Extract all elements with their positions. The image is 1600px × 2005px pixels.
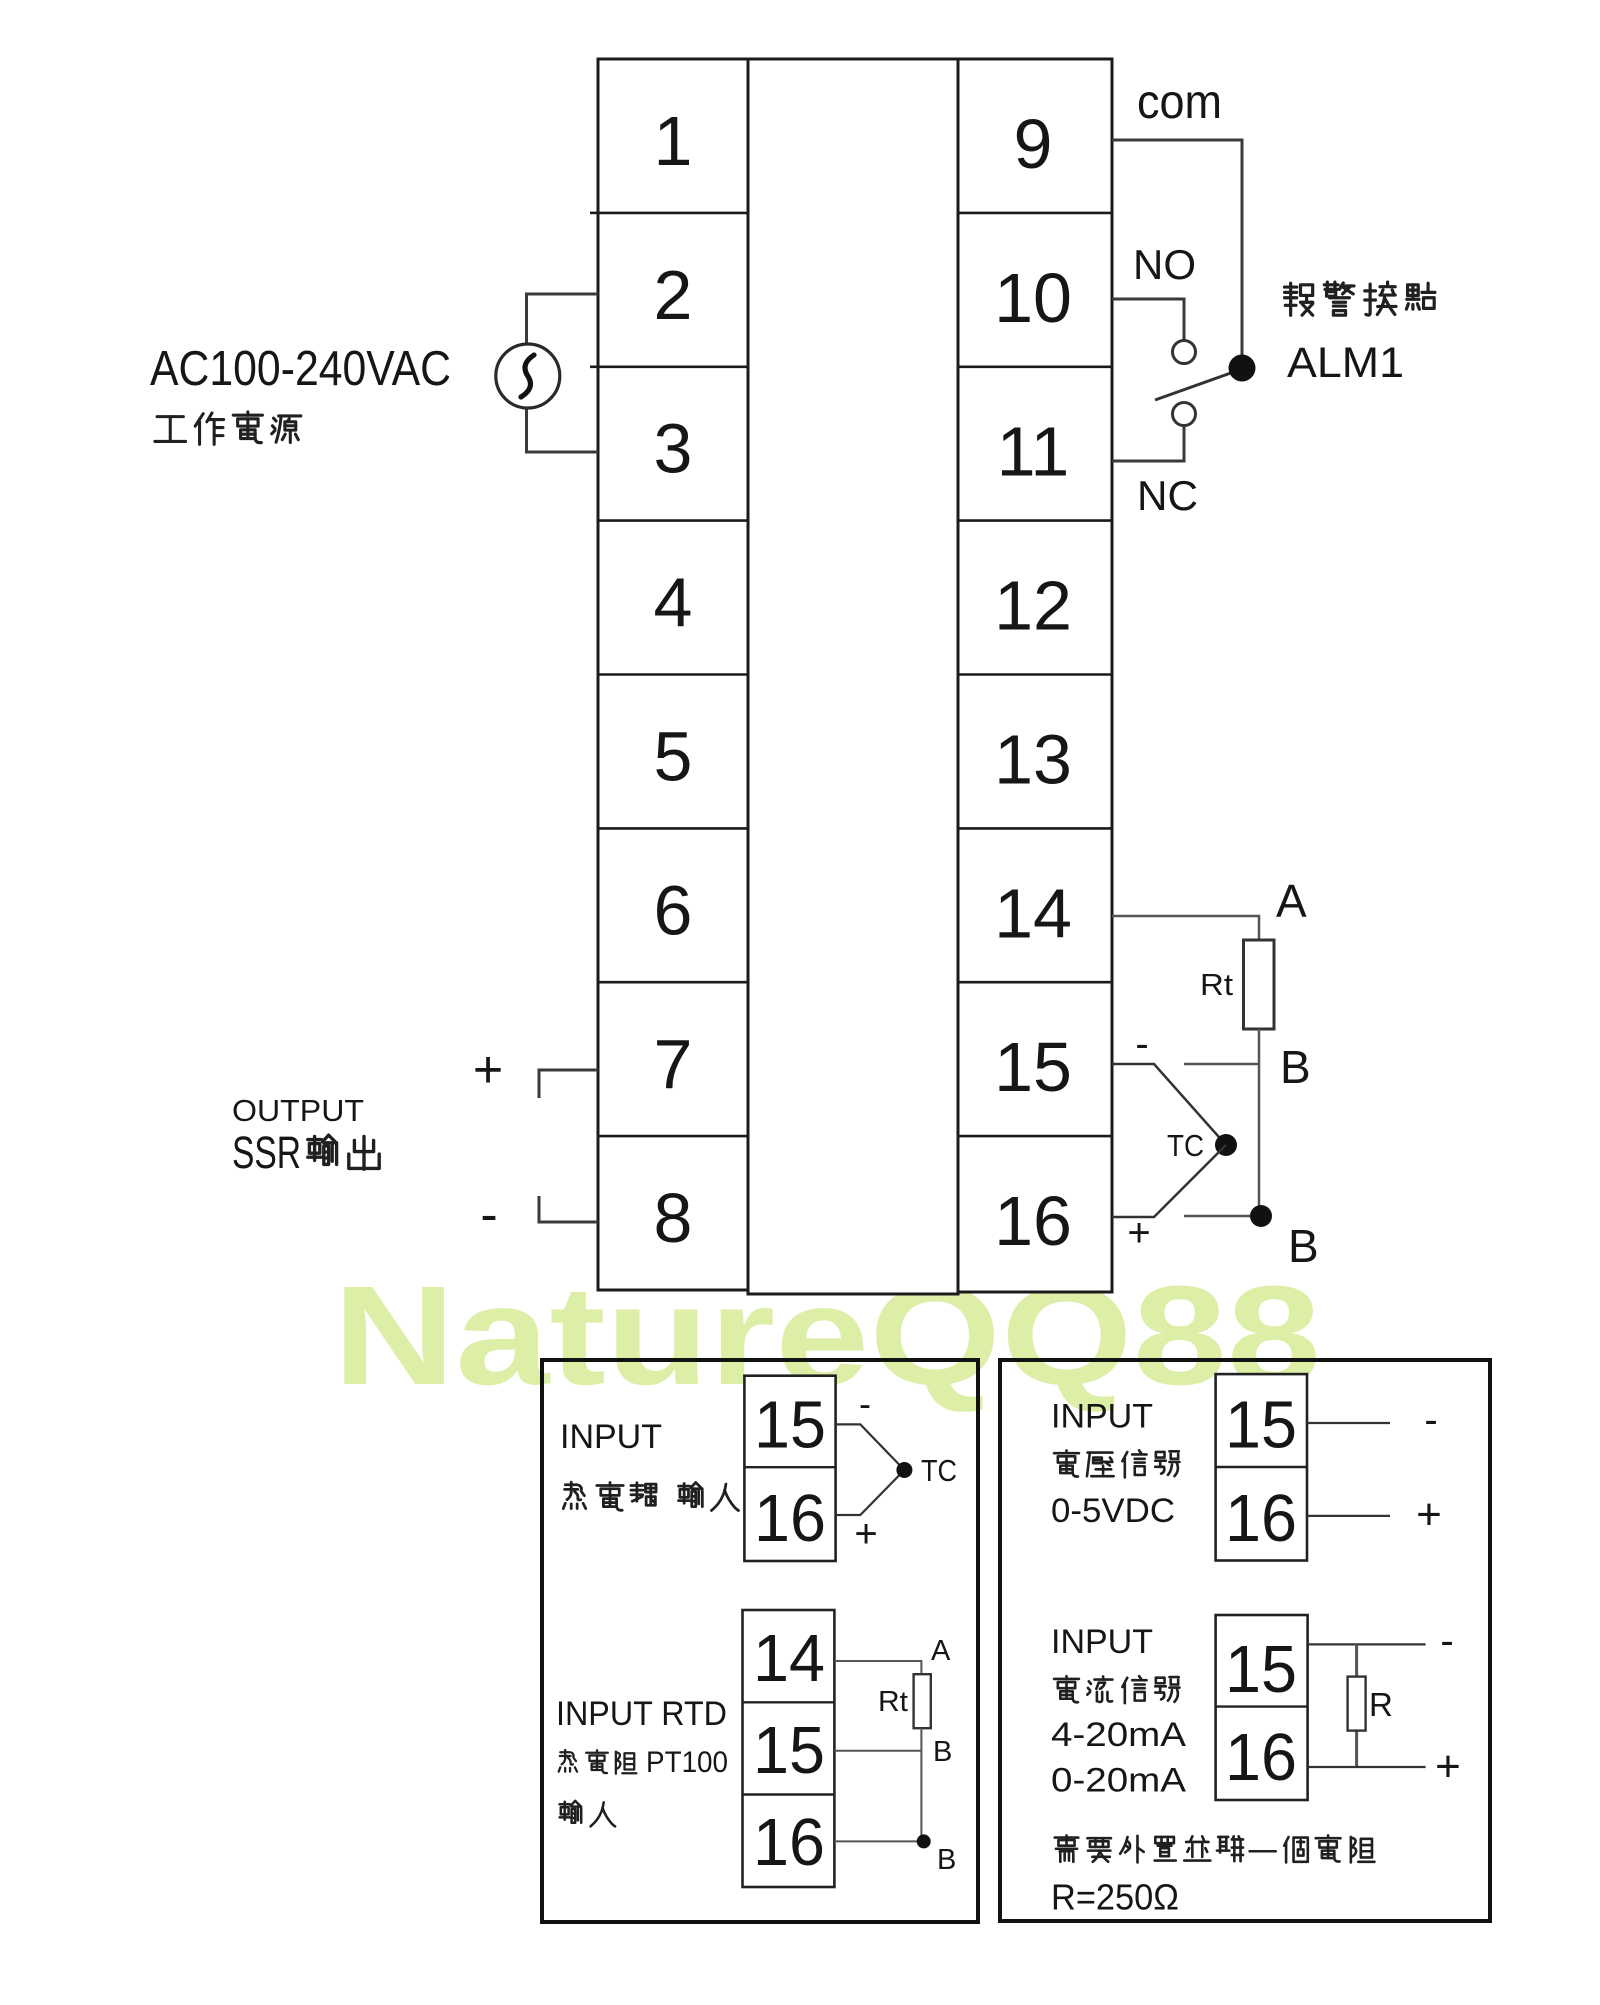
svg-text:com: com bbox=[1137, 76, 1222, 129]
svg-text:NO: NO bbox=[1133, 241, 1196, 288]
svg-text:SSR: SSR bbox=[232, 1127, 301, 1178]
svg-text:16: 16 bbox=[1225, 1481, 1297, 1556]
svg-text:-: - bbox=[1424, 1398, 1437, 1442]
svg-text:4-20mA: 4-20mA bbox=[1051, 1716, 1186, 1754]
svg-text:OUTPUT: OUTPUT bbox=[232, 1093, 364, 1128]
svg-text:+: + bbox=[1127, 1211, 1150, 1255]
svg-text:4: 4 bbox=[654, 564, 693, 642]
svg-text:+: + bbox=[473, 1041, 503, 1099]
svg-text:16: 16 bbox=[754, 1481, 826, 1556]
svg-text:Rt: Rt bbox=[1200, 967, 1233, 1002]
svg-text:INPUT: INPUT bbox=[1051, 1398, 1153, 1436]
svg-text:7: 7 bbox=[654, 1025, 693, 1103]
svg-text:15: 15 bbox=[1225, 1388, 1297, 1463]
svg-text:+: + bbox=[854, 1512, 877, 1556]
svg-text:NC: NC bbox=[1137, 472, 1198, 519]
svg-text:-: - bbox=[1135, 1022, 1148, 1066]
svg-text:TC: TC bbox=[921, 1453, 957, 1488]
svg-text:+: + bbox=[1435, 1742, 1461, 1791]
svg-text:16: 16 bbox=[1225, 1720, 1297, 1795]
svg-text:2: 2 bbox=[654, 256, 693, 334]
svg-text:R=250Ω: R=250Ω bbox=[1051, 1877, 1179, 1918]
svg-text:16: 16 bbox=[994, 1182, 1072, 1260]
svg-text:AC100-240VAC: AC100-240VAC bbox=[150, 342, 451, 396]
svg-text:1: 1 bbox=[654, 102, 693, 180]
svg-text:0-20mA: 0-20mA bbox=[1051, 1762, 1186, 1800]
svg-text:B: B bbox=[1280, 1041, 1311, 1093]
svg-text:8: 8 bbox=[654, 1179, 693, 1257]
svg-text:A: A bbox=[931, 1635, 951, 1667]
svg-text:-: - bbox=[480, 1186, 497, 1244]
svg-text:6: 6 bbox=[654, 871, 693, 949]
svg-text:15: 15 bbox=[1225, 1632, 1297, 1707]
svg-text:11: 11 bbox=[997, 413, 1070, 491]
svg-text:B: B bbox=[933, 1736, 952, 1768]
svg-text:0-5VDC: 0-5VDC bbox=[1051, 1492, 1175, 1530]
svg-text:INPUT: INPUT bbox=[560, 1418, 662, 1456]
svg-text:15: 15 bbox=[994, 1028, 1072, 1106]
svg-text:B: B bbox=[937, 1844, 956, 1876]
svg-text:15: 15 bbox=[754, 1388, 826, 1463]
svg-text:14: 14 bbox=[753, 1621, 825, 1696]
svg-text:R: R bbox=[1369, 1686, 1393, 1723]
svg-text:PT100: PT100 bbox=[646, 1746, 728, 1779]
svg-text:-: - bbox=[1440, 1619, 1453, 1663]
svg-text:16: 16 bbox=[753, 1805, 825, 1880]
svg-text:+: + bbox=[1416, 1490, 1442, 1539]
svg-text:5: 5 bbox=[654, 717, 693, 795]
svg-text:9: 9 bbox=[1014, 105, 1053, 183]
svg-text:B: B bbox=[1288, 1220, 1319, 1272]
svg-text:12: 12 bbox=[994, 567, 1072, 645]
svg-text:15: 15 bbox=[753, 1713, 825, 1788]
svg-text:A: A bbox=[1276, 875, 1307, 927]
svg-text:ALM1: ALM1 bbox=[1287, 339, 1404, 387]
svg-text:Rt: Rt bbox=[878, 1686, 908, 1718]
svg-text:TC: TC bbox=[1167, 1128, 1204, 1163]
svg-text:3: 3 bbox=[654, 410, 693, 488]
svg-text:13: 13 bbox=[994, 720, 1072, 798]
svg-text:INPUT RTD: INPUT RTD bbox=[556, 1695, 727, 1733]
svg-text:14: 14 bbox=[994, 874, 1072, 952]
svg-text:-: - bbox=[859, 1383, 871, 1424]
svg-text:10: 10 bbox=[994, 259, 1072, 337]
svg-text:INPUT: INPUT bbox=[1051, 1623, 1153, 1661]
